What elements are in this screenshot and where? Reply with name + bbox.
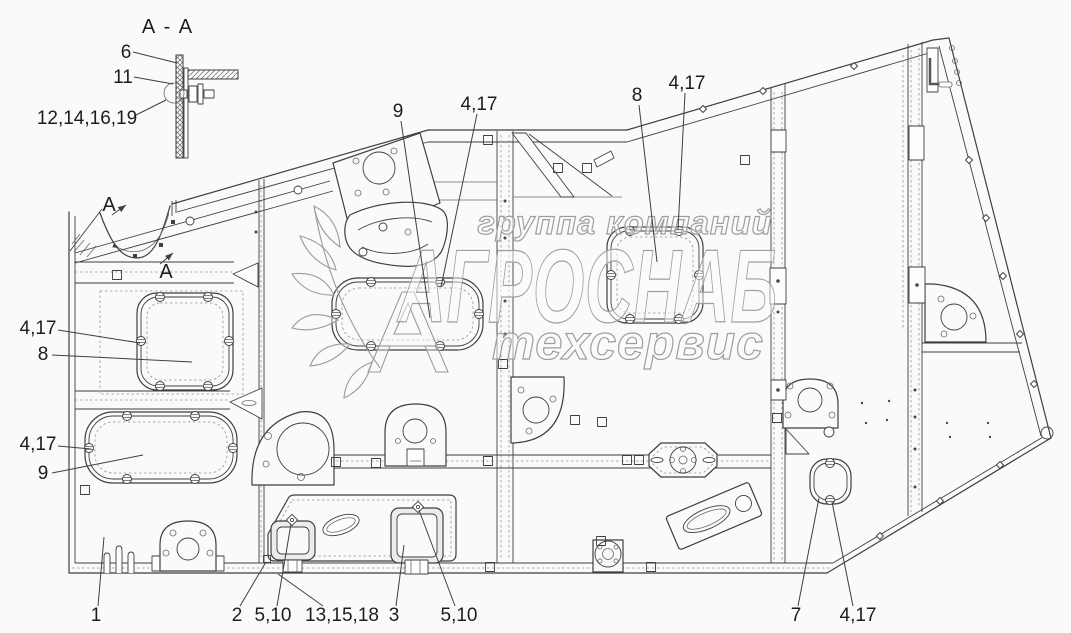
callout-items-5-10-left: 5,10 (255, 605, 292, 626)
technical-drawing: группа компаний АГРОСНАБ техсервис A - A… (0, 0, 1071, 633)
hatch-bolt-icon (123, 475, 132, 484)
callout-items-12-14-16-19: 12,14,16,19 (37, 108, 137, 129)
callout-item-11: 11 (113, 67, 133, 88)
hatch-bolt-icon (225, 337, 234, 346)
callout-items-4-17-top-center: 4,17 (461, 94, 498, 115)
callout-item-7: 7 (791, 605, 802, 626)
callout-item-9-left: 9 (38, 463, 49, 484)
hatched-panel-section (176, 55, 183, 158)
hatch-bolt-icon (191, 412, 200, 421)
dome-center (385, 404, 446, 466)
callout-item-6: 6 (121, 42, 132, 63)
callout-item-1: 1 (91, 605, 102, 626)
latch-cover (283, 560, 302, 572)
hatch-bolt-icon (191, 475, 200, 484)
section-view-title: A - A (142, 16, 194, 38)
hatch-bolt-icon (137, 337, 146, 346)
hatch-bolt-icon (826, 496, 835, 505)
callout-items-5-10-right: 5,10 (441, 605, 478, 626)
hatch-bolt-icon (123, 412, 132, 421)
callout-item-8-left: 8 (38, 344, 49, 365)
hatch-bolt-icon (332, 310, 341, 319)
hex-coupling-bracket (649, 443, 717, 477)
hatch-bolt-icon (367, 342, 376, 351)
callout-item-8-top: 8 (632, 85, 643, 106)
bolt-head-section (189, 86, 197, 102)
hatch-bolt-icon (367, 278, 376, 287)
hatch-bolt-icon (156, 382, 165, 391)
hatch-bolt-icon (826, 459, 835, 468)
drawing-page: группа компаний АГРОСНАБ техсервис A - A… (0, 0, 1071, 633)
hatch-bolt-icon (204, 382, 213, 391)
section-arrow-label-2: A (159, 261, 173, 283)
hatch-bolt-icon (156, 293, 165, 302)
latch-cover (405, 560, 428, 574)
callout-items-4-17-top-right: 4,17 (669, 73, 706, 94)
callout-item-3: 3 (389, 605, 400, 626)
callout-items-4-17-left-lower: 4,17 (20, 434, 57, 455)
hatch-small-oval (810, 459, 851, 505)
watermark-line3: техсервис (492, 317, 764, 370)
hatch-bolt-icon (204, 293, 213, 302)
hatch-left-lower (85, 412, 238, 484)
callout-item-2: 2 (232, 605, 243, 626)
section-arrow-label-1: A (102, 194, 116, 216)
callout-items-4-17-bottom-right: 4,17 (840, 605, 877, 626)
bolt-shaft-section (204, 90, 214, 98)
callout-item-9-top: 9 (393, 101, 404, 122)
flange-plate-bottom (593, 540, 623, 572)
hatch-bolt-icon (229, 444, 238, 453)
callout-items-13-15-18: 13,15,18 (305, 605, 379, 626)
callout-items-4-17-left-upper: 4,17 (20, 318, 57, 339)
hatched-shelf-section (188, 70, 238, 79)
hatch-bolt-icon (85, 444, 94, 453)
